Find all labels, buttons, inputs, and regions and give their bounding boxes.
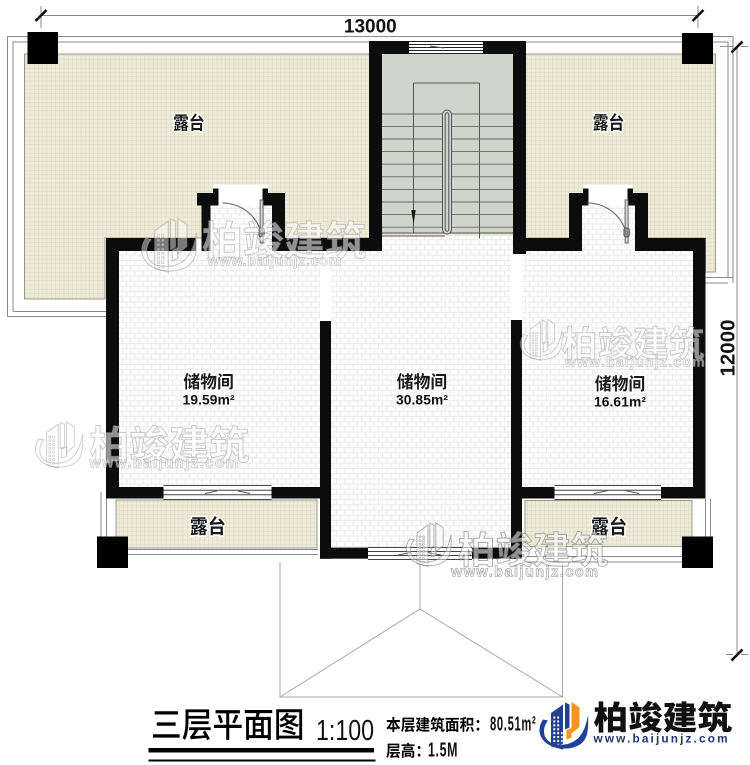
svg-text:www.baijunjz.com: www.baijunjz.com — [593, 732, 730, 746]
svg-text:1.5M: 1.5M — [428, 738, 458, 761]
svg-text:19.59m²: 19.59m² — [183, 393, 235, 408]
svg-text:www.baijunjz.com: www.baijunjz.com — [88, 456, 240, 472]
svg-text:www.baijunjz.com: www.baijunjz.com — [564, 354, 706, 370]
svg-text:www.baijunjz.com: www.baijunjz.com — [450, 565, 600, 581]
svg-text:www.baijunjz.com: www.baijunjz.com — [207, 254, 343, 270]
svg-text:80.51m²: 80.51m² — [490, 713, 536, 735]
svg-text:1:100: 1:100 — [316, 714, 374, 747]
svg-text:16.61m²: 16.61m² — [594, 395, 646, 410]
svg-text:30.85m²: 30.85m² — [396, 393, 448, 408]
svg-text:12000: 12000 — [717, 319, 740, 376]
svg-text:13000: 13000 — [344, 17, 397, 38]
